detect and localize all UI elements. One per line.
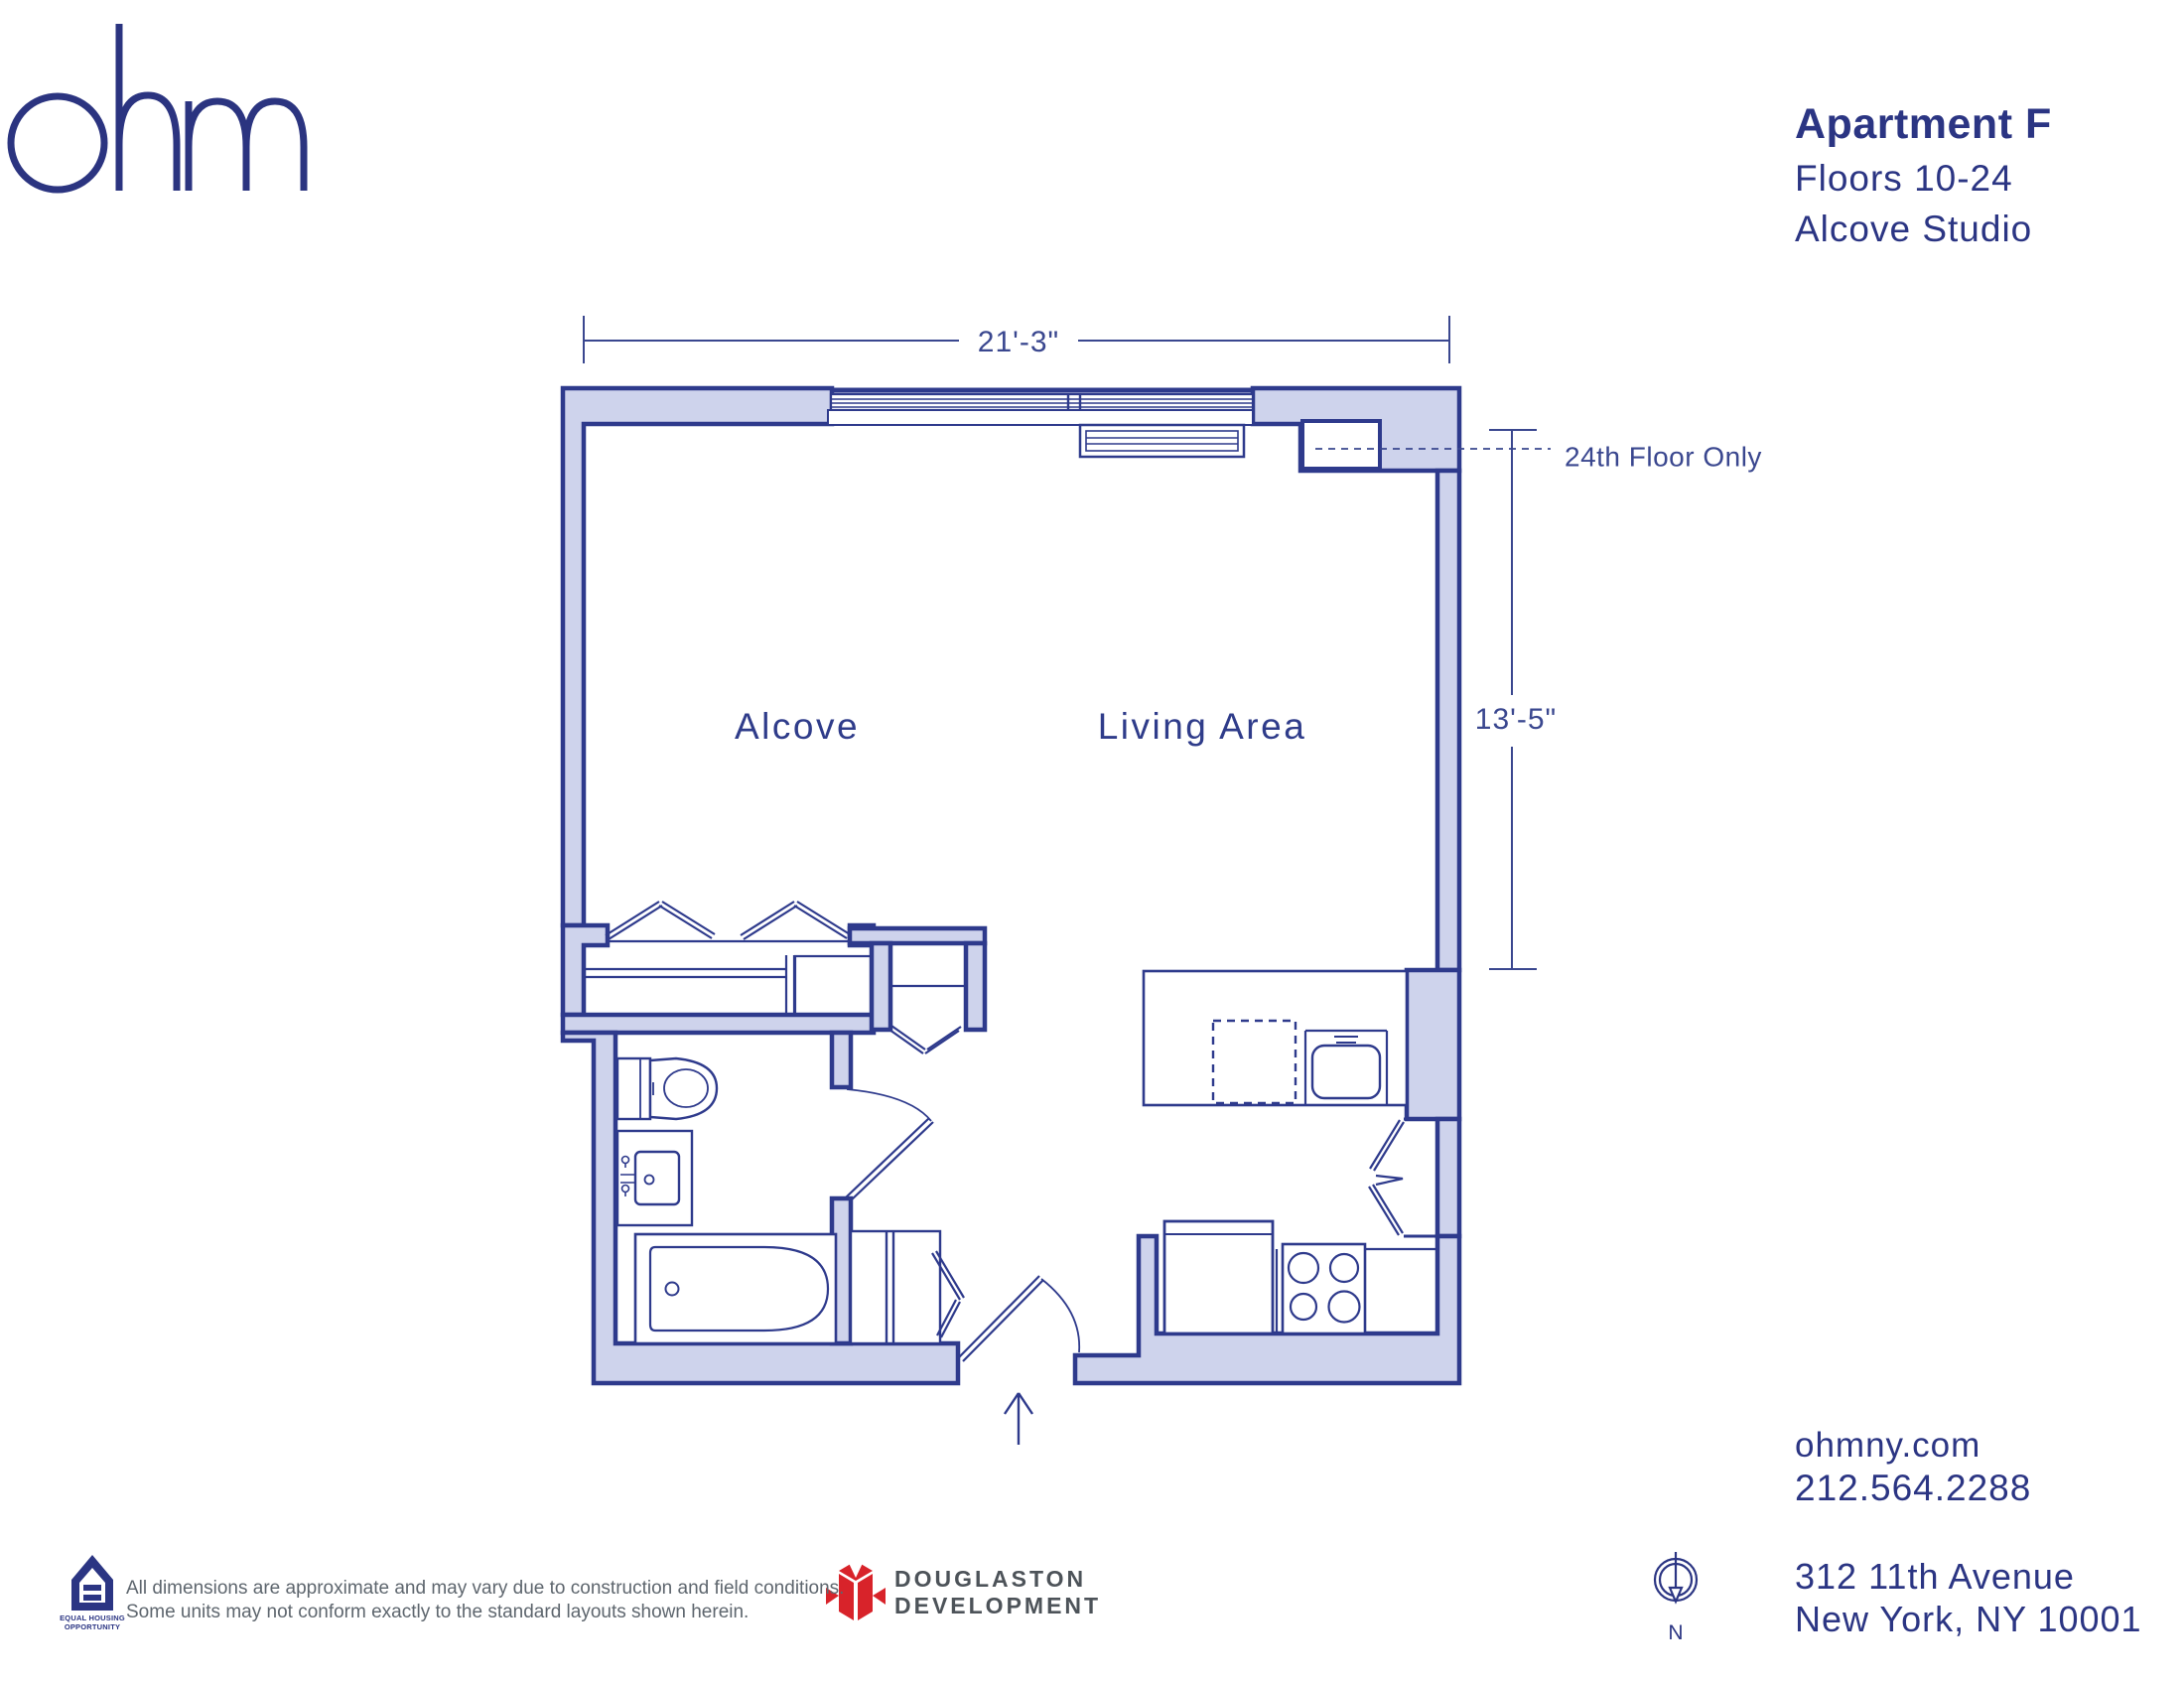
developer-name: DOUGLASTON DEVELOPMENT [894,1566,1101,1619]
disclaimer-line1: All dimensions are approximate and may v… [126,1577,844,1601]
entry-door [959,1276,1079,1361]
eho-label-line2: OPPORTUNITY [65,1622,120,1631]
disclaimer-line2: Some units may not conform exactly to th… [126,1601,844,1624]
compass-north-icon [1655,1552,1697,1602]
24th-floor-closet [1302,421,1380,469]
compass-north-label: N [1668,1621,1683,1644]
dimension-depth [1489,430,1537,969]
kitchen-counter [1144,971,1407,1105]
floorplan-page: Apartment F Floors 10-24 Alcove Studio [0,0,2184,1684]
refrigerator [1164,1221,1273,1333]
ptac-unit [1080,425,1244,457]
developer-name-line2: DEVELOPMENT [894,1593,1101,1619]
alcove-label: Alcove [735,706,860,747]
bathroom-door [846,1089,933,1201]
eho-label-line1: EQUAL HOUSING [60,1614,125,1622]
stove [1283,1244,1365,1333]
toilet [617,1058,717,1119]
phone-number: 212.564.2288 [1795,1470,2031,1506]
dimension-width-label: 21'-3" [978,326,1059,358]
dimension-depth-label: 13'-5" [1475,703,1557,736]
pantry-closet [1369,1119,1437,1236]
vanity-sink [617,1131,692,1225]
developer-name-line1: DOUGLASTON [894,1566,1101,1593]
website-link[interactable]: ohmny.com [1795,1428,1980,1463]
address-line2: New York, NY 10001 [1795,1602,2142,1637]
disclaimer: All dimensions are approximate and may v… [126,1577,844,1624]
bathtub [635,1234,836,1343]
alcove-closet [586,941,966,1015]
floor-note-label: 24th Floor Only [1565,441,1762,472]
address-line1: 312 11th Avenue [1795,1559,2075,1595]
living-area-label: Living Area [1098,706,1307,747]
entry-closet [851,1231,964,1343]
equal-housing-icon [71,1555,113,1611]
entry-arrow-icon [1005,1393,1032,1445]
window [828,390,1253,425]
